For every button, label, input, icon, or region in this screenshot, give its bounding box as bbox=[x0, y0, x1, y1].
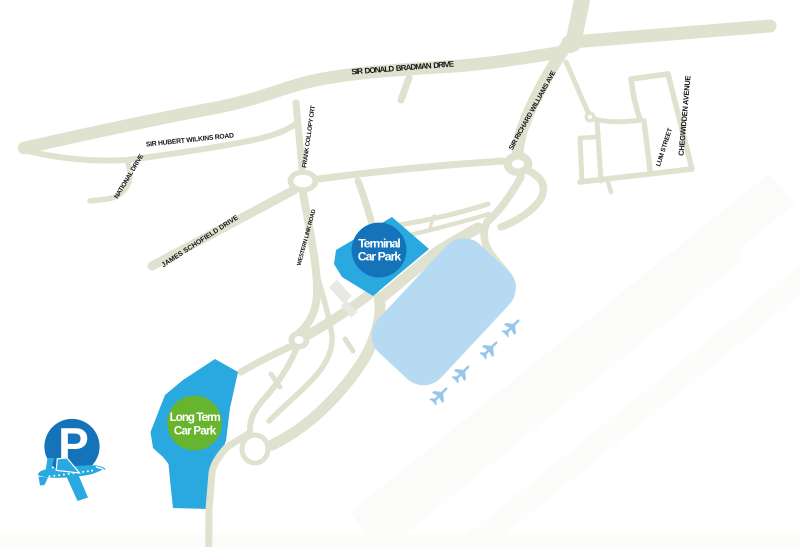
svg-text:Long Term: Long Term bbox=[170, 411, 221, 424]
svg-text:Car Park: Car Park bbox=[358, 250, 402, 264]
svg-text:Car Park: Car Park bbox=[174, 424, 217, 437]
svg-text:Terminal: Terminal bbox=[358, 236, 400, 250]
